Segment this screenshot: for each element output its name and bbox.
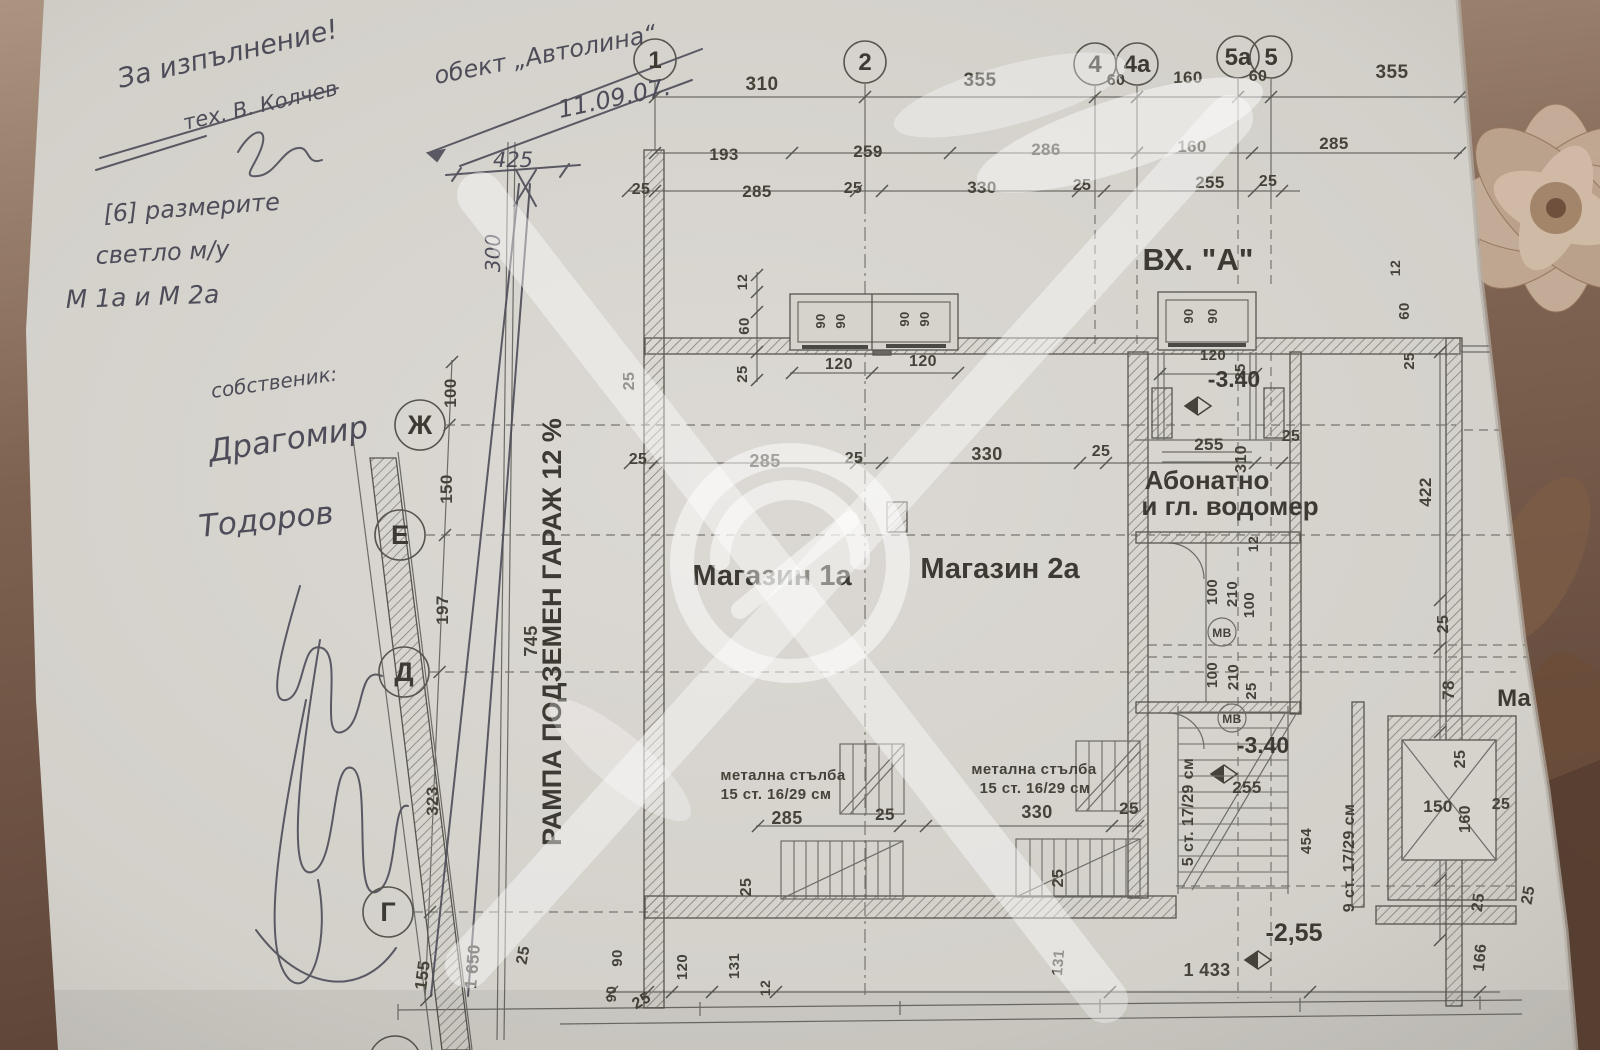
shop2-label: Магазин 2а (920, 553, 1080, 585)
stair1-label-line2: 15 ст. 16/29 см (721, 786, 832, 803)
dim-label: 330 (971, 444, 1002, 464)
dim-label: 78 (1439, 680, 1458, 700)
stair9-label: 9 ст. 17/29 см (1341, 804, 1358, 912)
dim-label: 25 (1282, 428, 1301, 445)
shop-partial-label: Ма (1497, 685, 1531, 712)
utility-label-line2: и гл. водомер (1141, 491, 1318, 521)
axis-bubble-label: Ж (407, 410, 433, 440)
dim-label: 100 (1204, 579, 1221, 605)
dim-label: 60 (736, 317, 753, 335)
dim-label: 90 (1181, 308, 1196, 323)
dim-label: 120 (825, 356, 853, 373)
dim-label: 120 (909, 353, 937, 370)
axis-bubble-label: Д (394, 657, 413, 687)
axis-bubble-label: Г (380, 897, 395, 927)
dim-label: 425 (493, 148, 533, 172)
dim-label: 90 (917, 311, 932, 326)
dim-label: 25 (632, 181, 651, 198)
axis-bubble-label: Е (391, 520, 409, 550)
axis-bubble-label: 4а (1124, 51, 1151, 78)
dim-label: 120 (674, 954, 691, 980)
dim-label: 160 (1457, 805, 1474, 833)
dim-label: 323 (423, 786, 442, 816)
dim-label: 25 (1050, 869, 1067, 888)
axis-bubble-label: 2 (858, 49, 871, 76)
dim-label: 25 (738, 878, 755, 897)
scanned-floor-plan: 1244а5а5ЖЕДГ 310355601606035519325928616… (0, 0, 1600, 1050)
dim-label: 454 (1298, 828, 1315, 854)
level-lower: -2,55 (1266, 919, 1323, 947)
dim-label: 166 (1471, 943, 1490, 972)
dim-label: 310 (746, 74, 779, 95)
dim-label: 90 (833, 313, 848, 328)
photo-of-floor-plan: 1244а5а5ЖЕДГ 310355601606035519325928616… (0, 0, 1600, 1050)
dim-label: 25 (629, 451, 648, 468)
dim-label: 12 (1245, 536, 1261, 552)
dim-label: 100 (441, 378, 460, 408)
dim-label: 25 (1119, 799, 1139, 818)
dim-label: 25 (1452, 750, 1469, 769)
remark-line3: М 1а и М 2а (65, 280, 220, 314)
dim-label: 90 (609, 949, 626, 967)
water-meter-abbr: МВ (1212, 626, 1231, 640)
water-meter-abbr: МВ (1222, 712, 1241, 726)
dim-label: 25 (1243, 682, 1260, 700)
dim-label: 25 (1092, 443, 1111, 460)
dim-label: 60 (1396, 302, 1413, 320)
dim-label: 193 (709, 145, 739, 164)
dim-label: 1 433 (1183, 960, 1230, 980)
dim-label: 25 (514, 945, 534, 966)
dim-label: 25 (1469, 892, 1488, 913)
dim-label: 25 (1492, 796, 1511, 813)
level-inner: -3.40 (1237, 732, 1289, 758)
dim-label: 25 (844, 180, 863, 197)
paper-fold-shadow (0, 990, 1600, 1050)
dim-label: 90 (813, 313, 828, 328)
dim-label: 131 (726, 953, 743, 979)
dim-label: 422 (1416, 477, 1435, 507)
dim-label: 90 (897, 311, 912, 326)
entrance-label: ВХ. "А" (1143, 242, 1254, 277)
dim-label: 330 (1021, 802, 1052, 822)
level-entry: -3.40 (1208, 366, 1260, 392)
ramp-label: РАМПА ПОДЗЕМЕН ГАРАЖ 12 % (537, 418, 567, 846)
dim-label: 12 (734, 274, 750, 290)
dim-label: 197 (433, 595, 452, 625)
dim-label: 285 (771, 808, 802, 828)
dim-label: 25 (1401, 352, 1418, 370)
dim-label: 285 (1319, 134, 1349, 153)
dim-label: 100 (1204, 662, 1221, 688)
stair2-label-line1: метална стълба (971, 761, 1096, 778)
dim-label: 285 (742, 182, 772, 201)
dim-label: 255 (1194, 435, 1224, 454)
dim-label: 355 (1376, 62, 1409, 83)
axis-bubble-label: 1 (648, 47, 661, 74)
dim-label: 25 (1519, 885, 1539, 906)
dim-label: 25 (1259, 173, 1278, 190)
stair5-label: 5 ст. 17/29 см (1180, 758, 1197, 866)
stair2-label-line2: 15 ст. 16/29 см (980, 780, 1091, 797)
dim-label: 150 (437, 474, 456, 504)
dim-label: 12 (1387, 260, 1403, 276)
dim-label: 210 (1225, 664, 1242, 690)
dim-label: 255 (1232, 778, 1262, 797)
stair1-label-line1: метална стълба (720, 767, 845, 784)
dim-label: 25 (875, 805, 895, 824)
dim-label: 150 (1423, 797, 1453, 816)
dim-label: 100 (1241, 592, 1258, 618)
dim-label: 259 (853, 142, 883, 161)
dim-label: 120 (1200, 347, 1226, 364)
dim-label: 90 (1205, 308, 1220, 323)
dim-label: 25 (734, 365, 751, 383)
dim-label: 210 (1224, 581, 1241, 607)
dim-label: 25 (1435, 615, 1452, 634)
